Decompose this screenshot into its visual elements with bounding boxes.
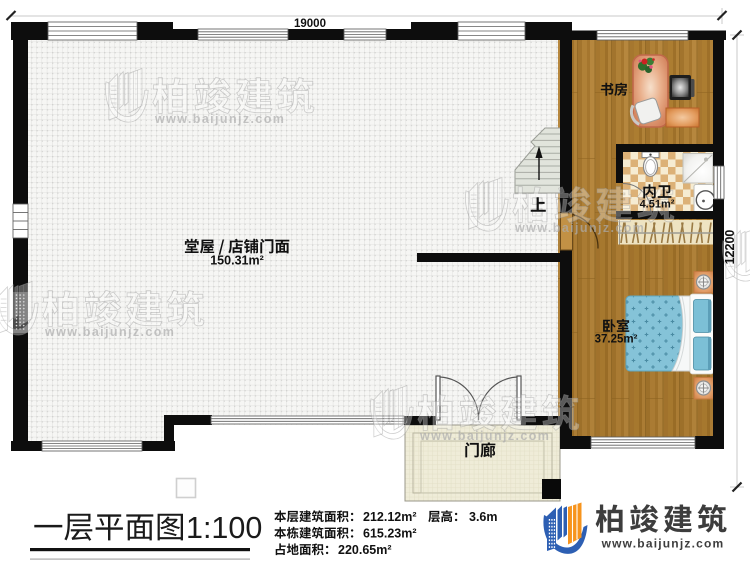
svg-text:3.6m: 3.6m [469, 510, 498, 524]
svg-text:37.25m²: 37.25m² [595, 334, 638, 346]
svg-text:150.31m²: 150.31m² [210, 254, 264, 268]
svg-text:4.51m²: 4.51m² [640, 199, 675, 211]
svg-text:1:100: 1:100 [186, 511, 262, 545]
svg-text:615.23m²: 615.23m² [363, 527, 417, 541]
svg-text:220.65m²: 220.65m² [338, 543, 392, 557]
svg-text:212.12m²: 212.12m² [363, 510, 417, 524]
svg-text:www.baijunjz.com: www.baijunjz.com [601, 537, 725, 551]
svg-text:12200: 12200 [723, 230, 737, 265]
svg-text:19000: 19000 [294, 18, 326, 30]
